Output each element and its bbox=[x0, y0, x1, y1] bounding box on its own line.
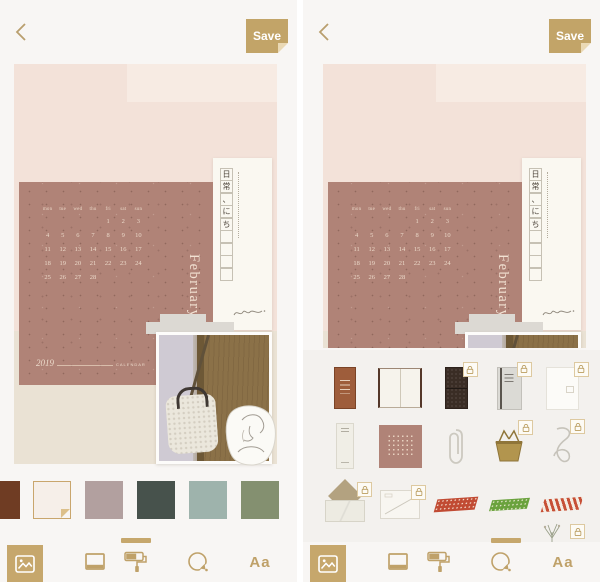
calendar-date: 7 bbox=[394, 229, 409, 243]
kanji-box bbox=[529, 230, 542, 243]
kanji-box: 常 bbox=[529, 180, 542, 193]
kanji-box bbox=[529, 243, 542, 256]
calendar-date bbox=[40, 215, 55, 229]
calendar-rule bbox=[57, 365, 113, 366]
calendar-date: 20 bbox=[70, 257, 85, 271]
kanji-box bbox=[220, 243, 233, 256]
kanji-box: 常 bbox=[220, 180, 233, 193]
calendar-date bbox=[425, 271, 440, 285]
vertical-caption-line bbox=[547, 172, 548, 238]
calendar-date: 21 bbox=[85, 257, 100, 271]
calendar-date bbox=[394, 215, 409, 229]
frame-tool-button[interactable] bbox=[75, 542, 115, 582]
calendar-caption: CALENDAR bbox=[116, 362, 146, 367]
sticker-dark-leather-notebook[interactable] bbox=[429, 362, 483, 414]
frame-icon bbox=[386, 551, 410, 573]
calendar-date: 25 bbox=[40, 271, 55, 285]
screen-sticker-editor: Save 日常、にち montuewedthufrisatsun 1234567… bbox=[303, 0, 600, 582]
woman-sketch-sticker bbox=[224, 404, 278, 468]
calendar-date bbox=[85, 215, 100, 229]
calendar-month-label: February bbox=[185, 254, 202, 318]
calendar-date bbox=[70, 215, 85, 229]
calendar-date: 1 bbox=[410, 215, 425, 229]
frame-icon bbox=[83, 551, 107, 573]
calendar-date: 20 bbox=[379, 257, 394, 271]
photo-image bbox=[468, 335, 578, 348]
swatch-olive-green[interactable] bbox=[241, 481, 279, 519]
calendar-day-header: sat bbox=[425, 207, 440, 212]
premium-lock-badge bbox=[574, 362, 589, 377]
premium-lock-badge bbox=[463, 362, 478, 377]
japanese-paper-card-layer[interactable]: 日常、にち bbox=[213, 158, 272, 330]
calendar-date bbox=[410, 271, 425, 285]
calendar-date: 9 bbox=[425, 229, 440, 243]
calendar-day-header: fri bbox=[101, 207, 116, 212]
kanji-box bbox=[529, 268, 542, 281]
calendar-date: 6 bbox=[379, 229, 394, 243]
kanji-box-column: 日常、にち bbox=[220, 168, 233, 281]
kanji-box: に bbox=[529, 205, 542, 218]
calendar-date: 13 bbox=[70, 243, 85, 257]
sticker-open-envelope[interactable] bbox=[318, 478, 372, 530]
image-icon bbox=[318, 555, 338, 573]
sticker-gold-binder-clip[interactable] bbox=[482, 420, 536, 472]
photo-layer[interactable] bbox=[156, 332, 272, 464]
dried-flower-icon bbox=[539, 522, 565, 542]
sticker-open-notebook[interactable] bbox=[373, 362, 427, 414]
back-button[interactable] bbox=[12, 22, 30, 42]
kanji-box bbox=[220, 230, 233, 243]
paint-roller-tool-button[interactable] bbox=[116, 542, 156, 582]
calendar-date: 14 bbox=[85, 243, 100, 257]
calendar-date: 19 bbox=[55, 257, 70, 271]
kanji-box: 、 bbox=[529, 193, 542, 206]
calendar-date: 5 bbox=[55, 229, 70, 243]
sticker-wire-clip[interactable] bbox=[535, 420, 589, 472]
back-button[interactable] bbox=[315, 22, 333, 42]
paint-roller-icon bbox=[123, 550, 149, 574]
premium-lock-badge bbox=[518, 420, 533, 435]
calendar-date-grid: 1234567891011121314151617181920212223242… bbox=[40, 215, 146, 285]
chevron-left-icon bbox=[12, 22, 30, 42]
text-tool-label: Aa bbox=[249, 554, 270, 571]
calendar-date: 13 bbox=[379, 243, 394, 257]
calendar-date: 16 bbox=[425, 243, 440, 257]
sticker-dotted-calendar-card[interactable] bbox=[373, 420, 427, 472]
sticker-tool-button[interactable] bbox=[178, 542, 218, 582]
calendar-day-header: thu bbox=[394, 207, 409, 212]
micro-text bbox=[340, 380, 350, 394]
calendar-month-label: February bbox=[494, 254, 511, 318]
calendar-day-header: mon bbox=[349, 207, 364, 212]
text-tool-label: Aa bbox=[552, 554, 573, 571]
calendar-date: 11 bbox=[349, 243, 364, 257]
calendar-date: 5 bbox=[364, 229, 379, 243]
calendar-date: 27 bbox=[379, 271, 394, 285]
calendar-date: 10 bbox=[440, 229, 455, 243]
calendar-day-header: fri bbox=[410, 207, 425, 212]
calendar-day-header-row: montuewedthufrisatsun bbox=[40, 207, 146, 212]
japanese-paper-card-layer[interactable]: 日常、にち bbox=[522, 158, 581, 330]
image-icon bbox=[15, 555, 35, 573]
envelope-body bbox=[325, 500, 365, 522]
sticker-circle-icon bbox=[489, 550, 513, 574]
calendar-date bbox=[364, 215, 379, 229]
calendar-date: 23 bbox=[116, 257, 131, 271]
calendar-date bbox=[379, 215, 394, 229]
calendar-day-header-row: montuewedthufrisatsun bbox=[349, 207, 455, 212]
paint-roller-icon bbox=[426, 550, 452, 574]
calendar-date: 22 bbox=[410, 257, 425, 271]
sticker-circle-icon bbox=[186, 550, 210, 574]
calendar-date: 25 bbox=[349, 271, 364, 285]
sticker-brown-notebook[interactable] bbox=[318, 362, 372, 414]
photo-layer[interactable] bbox=[465, 332, 581, 348]
calendar-date: 24 bbox=[440, 257, 455, 271]
calendar-date: 4 bbox=[349, 229, 364, 243]
signature-icon bbox=[542, 306, 576, 318]
calendar-date: 6 bbox=[70, 229, 85, 243]
calendar-date: 18 bbox=[349, 257, 364, 271]
calendar-date: 28 bbox=[85, 271, 100, 285]
bottom-toolbar: Aa bbox=[0, 540, 297, 582]
calendar-date bbox=[440, 271, 455, 285]
calendar-date: 14 bbox=[394, 243, 409, 257]
signature-icon bbox=[233, 306, 267, 318]
calendar-date: 8 bbox=[410, 229, 425, 243]
calendar-day-header: tue bbox=[55, 207, 70, 212]
calendar-date: 28 bbox=[394, 271, 409, 285]
sticker-letter-envelope[interactable] bbox=[373, 478, 427, 530]
background-color-palette bbox=[0, 481, 297, 521]
premium-lock-badge bbox=[517, 362, 532, 377]
calendar-date: 1 bbox=[101, 215, 116, 229]
sticker-red-checked-tape[interactable] bbox=[429, 478, 483, 530]
save-button[interactable]: Save bbox=[549, 19, 591, 53]
calendar-date bbox=[101, 271, 116, 285]
calendar-day-header: thu bbox=[85, 207, 100, 212]
premium-lock-badge bbox=[411, 485, 426, 500]
calendar-date: 24 bbox=[131, 257, 146, 271]
calendar-date: 26 bbox=[55, 271, 70, 285]
premium-lock-badge bbox=[570, 524, 585, 539]
photo-tool-button[interactable] bbox=[310, 545, 346, 582]
kanji-box: に bbox=[220, 205, 233, 218]
calendar-date bbox=[55, 215, 70, 229]
collage-canvas[interactable]: 日常、にち montuewedthufrisatsun 123456789101… bbox=[323, 64, 586, 348]
save-button[interactable]: Save bbox=[246, 19, 288, 53]
calendar-date: 2 bbox=[425, 215, 440, 229]
calendar-date: 7 bbox=[85, 229, 100, 243]
sticker-tray bbox=[303, 350, 600, 542]
kanji-box: 日 bbox=[220, 168, 233, 181]
calendar-day-header: tue bbox=[364, 207, 379, 212]
swatch-dark-brown[interactable] bbox=[0, 481, 20, 519]
calendar-date: 12 bbox=[55, 243, 70, 257]
calendar-date: 15 bbox=[101, 243, 116, 257]
calendar-date: 19 bbox=[364, 257, 379, 271]
sticker-green-dotted-tape[interactable] bbox=[482, 478, 536, 530]
paint-roller-tool-button[interactable] bbox=[419, 542, 459, 582]
app-comparison-screenshot: Save 日常、にち montuewedthufrisatsun 1234567… bbox=[0, 0, 600, 582]
calendar-date: 8 bbox=[101, 229, 116, 243]
micro-text bbox=[505, 374, 514, 382]
sticker-paper-ticket[interactable] bbox=[318, 420, 372, 472]
kanji-box: 日 bbox=[529, 168, 542, 181]
calendar-day-header: sun bbox=[440, 207, 455, 212]
calendar-date: 21 bbox=[394, 257, 409, 271]
kanji-box-column: 日常、にち bbox=[529, 168, 542, 281]
calendar-date bbox=[349, 215, 364, 229]
bag-strap bbox=[498, 335, 518, 348]
swatch-sage-green[interactable] bbox=[189, 481, 227, 519]
photo-tool-button[interactable] bbox=[7, 545, 43, 582]
text-tool-button[interactable]: Aa bbox=[543, 542, 583, 582]
swatch-dusty-mauve[interactable] bbox=[85, 481, 123, 519]
kanji-box bbox=[220, 268, 233, 281]
calendar-year: 2019 bbox=[36, 358, 54, 368]
kanji-box bbox=[220, 255, 233, 268]
frame-tool-button[interactable] bbox=[378, 542, 418, 582]
premium-lock-badge bbox=[357, 482, 372, 497]
screen-background-editor: Save 日常、にち montuewedthufrisatsun 1234567… bbox=[0, 0, 297, 582]
calendar-date: 9 bbox=[116, 229, 131, 243]
collage-canvas[interactable]: 日常、にち montuewedthufrisatsun 123456789101… bbox=[14, 64, 277, 464]
bottom-toolbar: Aa bbox=[303, 540, 600, 582]
chevron-left-icon bbox=[315, 22, 333, 42]
calendar-date: 17 bbox=[131, 243, 146, 257]
calendar-date: 11 bbox=[40, 243, 55, 257]
kanji-box: ち bbox=[529, 218, 542, 231]
calendar-day-header: mon bbox=[40, 207, 55, 212]
calendar-day-header: sun bbox=[131, 207, 146, 212]
calendar-date: 15 bbox=[410, 243, 425, 257]
calendar-year-row: 2019 CALENDAR bbox=[36, 358, 146, 368]
calendar-date: 2 bbox=[116, 215, 131, 229]
sticker-dried-flower-partial[interactable] bbox=[539, 522, 591, 542]
calendar-date: 27 bbox=[70, 271, 85, 285]
calendar-day-header: sat bbox=[116, 207, 131, 212]
calendar-date: 26 bbox=[364, 271, 379, 285]
collage: 日常、にち montuewedthufrisatsun 123456789101… bbox=[323, 64, 586, 348]
calendar-date: 10 bbox=[131, 229, 146, 243]
calendar-date bbox=[116, 271, 131, 285]
text-tool-button[interactable]: Aa bbox=[240, 542, 280, 582]
dot-grid bbox=[387, 434, 414, 458]
paperclip-icon bbox=[447, 426, 465, 466]
calendar-date: 17 bbox=[440, 243, 455, 257]
kanji-box bbox=[529, 255, 542, 268]
calendar-day-header: wed bbox=[379, 207, 394, 212]
calendar-date: 23 bbox=[425, 257, 440, 271]
sticker-gray-notebook[interactable] bbox=[482, 362, 536, 414]
calendar-date: 3 bbox=[131, 215, 146, 229]
swatch-cream-paper-selected[interactable] bbox=[33, 481, 71, 519]
calendar-date: 12 bbox=[364, 243, 379, 257]
vertical-caption-line bbox=[238, 172, 239, 238]
premium-lock-badge bbox=[570, 419, 585, 434]
calendar-date: 22 bbox=[101, 257, 116, 271]
sticker-white-notepad[interactable] bbox=[535, 362, 589, 414]
calendar-date: 4 bbox=[40, 229, 55, 243]
kanji-box: 、 bbox=[220, 193, 233, 206]
calendar-day-header: wed bbox=[70, 207, 85, 212]
collage: 日常、にち montuewedthufrisatsun 123456789101… bbox=[14, 64, 277, 464]
crochet-bag bbox=[165, 393, 219, 454]
swatch-dark-teal[interactable] bbox=[137, 481, 175, 519]
calendar-date: 18 bbox=[40, 257, 55, 271]
calendar-date: 16 bbox=[116, 243, 131, 257]
calendar-date bbox=[131, 271, 146, 285]
sticker-tool-button[interactable] bbox=[481, 542, 521, 582]
calendar-date-grid: 1234567891011121314151617181920212223242… bbox=[349, 215, 455, 285]
sticker-paperclip[interactable] bbox=[429, 420, 483, 472]
kanji-box: ち bbox=[220, 218, 233, 231]
calendar-date: 3 bbox=[440, 215, 455, 229]
